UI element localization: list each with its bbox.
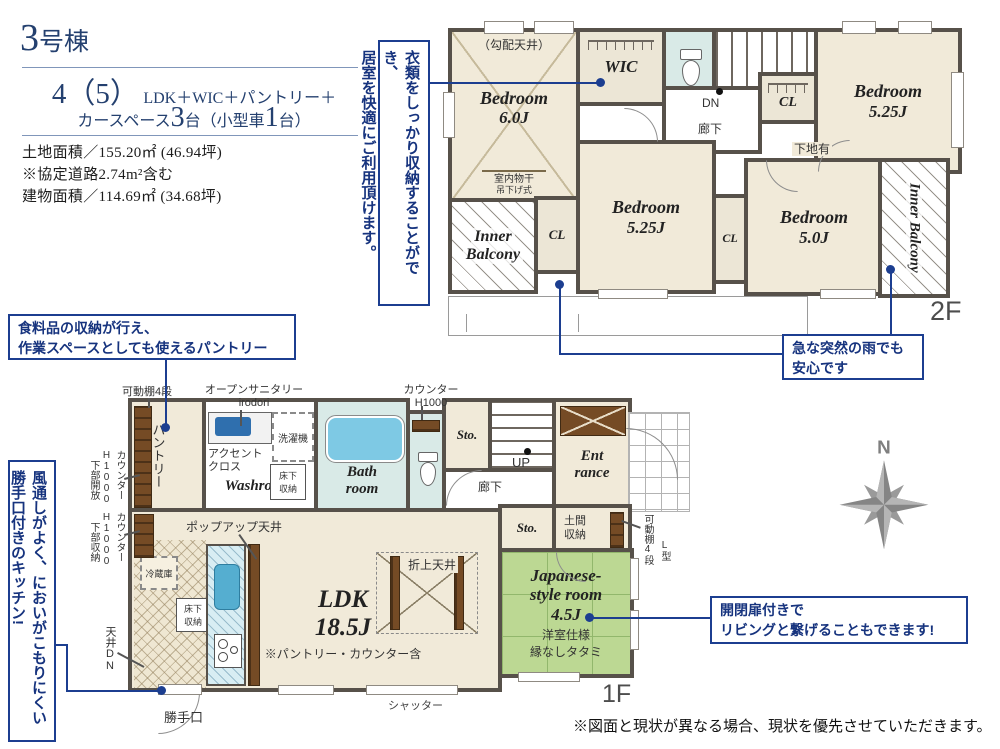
compact-car-count: 1 [265,102,279,133]
entrance-closet [560,406,626,436]
compass-n: N [877,437,891,458]
closet-label: CL [779,95,797,111]
doma-line1: 土間 [564,514,586,528]
callout-wic-line1: 衣類をしっかり収納することができ、 [379,50,423,296]
balcony-label: Inner [471,228,514,246]
carspace-post: 台） [279,113,311,130]
callout-connector [890,272,892,334]
callout-rain-line2: 安心です [792,359,914,379]
callout-pantry-line1: 食料品の収納が行え、 [18,319,286,339]
room-toilet-1f [406,410,446,512]
lshelf-main: 可動棚4段 [640,514,655,565]
room-closet-a: CL [534,196,580,274]
shitaji-label: 下地有 [792,142,832,156]
storage-label: Sto. [457,428,478,443]
callout-kitchen-line2: 勝手口付きのキッチン! [7,470,28,732]
window [898,21,932,34]
room-doma-storage: 土間 収納 [552,504,632,552]
fridge-box: 冷蔵庫 [140,556,178,590]
window [842,21,876,34]
window-shutter [366,685,458,695]
divider [22,135,358,136]
counter-l2-c: 下部収納 [86,512,101,567]
door-arc [446,470,482,506]
callout-kitchen-line1: 風通しがよく、においがこもりにくい [28,470,49,732]
underfloor-storage-box: 床下 収納 [270,464,306,500]
raised-ceiling-label: 折上天井 [406,556,458,573]
window [443,92,455,138]
kitchen-wall-panel [248,544,260,686]
ldk-note: ※パントリー・カウンター含 [262,645,424,662]
underfloor-line1: 床下 [184,602,202,615]
callout-pantry: 食料品の収納が行え、 作業スペースとしても使えるパントリー [8,314,296,360]
jroom-size: 4.5J [551,605,581,624]
stair-up-dot [524,448,531,455]
room-closet-stairs: CL [758,72,818,124]
room-name: Bedroom [854,81,922,101]
hall-2f-label: 廊下 [698,122,722,136]
callout-dot [161,423,170,432]
balcony-label: Inner Balcony [906,183,923,273]
ceiling-dn-label: 天井DN [102,626,118,672]
callout-dot [157,686,166,695]
window [484,21,524,34]
underfloor-line2: 収納 [184,615,202,628]
counter-l2-b: H1000 [101,512,112,567]
counter-h1000 [412,420,440,432]
callout-jroom: 開閉扉付きで リビングと繋げることもできます! [710,596,968,644]
floor-1-label: 1F [602,680,631,709]
page-title: 3号棟 [20,16,89,60]
room-name: Bedroom [452,88,576,108]
window [518,672,580,682]
bathtub-icon [326,416,404,462]
wic-label: WIC [604,57,637,76]
doma-label: 土間 収納 [564,514,586,543]
callout-jroom-line2: リビングと繋げることもできます! [720,621,958,641]
kitchen-sink-icon [214,564,240,610]
sanitary-label: オープンサニタリー irodori [196,384,312,410]
room-bedroom-525j-b: Bedroom 5.25J [576,140,716,294]
wall-counter [134,514,154,558]
sanitary-line2: irodori [196,397,312,410]
washer-box: 洗濯機 [272,412,314,462]
room-size: 5.0J [799,228,829,247]
closet-rod [768,83,808,93]
disclaimer: ※図面と現状が異なる場合、現状を優先させていただきます。 [573,715,992,736]
callout-wic: 衣類をしっかり収納することができ、 居室を快適にご利用頂けます。 [378,40,430,306]
room-label: Bedroom 6.0J [452,88,576,127]
land-area: 土地面積／155.20㎡ (46.94坪) [22,141,222,162]
bathroom-label: Bath room [318,464,406,498]
stove-icon [214,634,242,668]
callout-wic-line2: 居室を快適にご利用頂けます。 [357,50,379,296]
pantry-shelf [134,406,152,508]
room-name: Bedroom [780,207,848,227]
jroom-note2: 縁なしタタミ [530,643,602,660]
callout-connector [559,353,782,355]
door-arc [624,108,658,142]
closet-label: CL [722,232,737,245]
callout-connector [430,82,602,84]
callout-rain-line1: 急な突然の雨でも [792,339,914,359]
window [630,610,639,650]
roof-outline [448,296,808,336]
inner-balcony-right: Inner Balcony [878,158,950,298]
back-door-label: 勝手口 [164,710,203,726]
inner-balcony-left: Inner Balcony [448,198,538,294]
compass-rose-icon: N [828,436,940,558]
lshelf-sub: L型 [657,514,672,565]
building-area: 建物面積／114.69㎡ (34.68坪) [22,185,221,206]
counter-line1: カウンター [398,384,464,397]
storage-label: Sto. [517,521,538,536]
accent-cloth-label: アクセント クロス [208,448,262,474]
carspace-count: 3 [171,102,185,133]
counter-label-open: カウンター H1000 下部開放 [86,450,127,505]
popup-ceiling-label: ポップアップ天井 [184,520,284,534]
callout-pantry-line2: 作業スペースとしても使えるパントリー [18,339,286,359]
doma-line2: 収納 [564,528,586,542]
divider [22,67,358,68]
counter-label-storage: カウンター H1000 下部収納 [86,512,127,567]
doma-shelf [610,512,624,548]
ceiling-beam [390,556,400,630]
callout-dot [596,78,605,87]
room-bedroom-50j: Bedroom 5.0J [744,158,884,296]
callout-kitchen: 風通しがよく、においがこもりにくい 勝手口付きのキッチン! [8,460,56,742]
room-size: 6.0J [452,108,576,127]
toilet-icon [679,49,701,85]
building-suffix: 号棟 [39,29,89,56]
leader-line [421,406,423,420]
sink-icon [215,417,251,436]
bath-line1: Bath [318,464,406,481]
entrance-line2: rance [556,465,628,482]
land-note: ※協定道路2.74m²含む [22,163,173,184]
bath-line2: room [318,481,406,498]
accent-cloth-line1: アクセント [208,448,262,461]
dn-label: DN [702,96,719,110]
room-entrance: Ent rance [552,398,632,510]
window [630,558,639,600]
room-storage-2: Sto. [498,504,556,552]
shutter-label: シャッター [388,700,443,713]
plan-type-line2: カースペース3台（小型車1台） [28,102,360,134]
stair-dn-dot [716,88,723,95]
lshelf-label: 可動棚4段 L型 [640,514,672,565]
leader-line [240,410,242,426]
floor-plan-flyer: 3号棟 4（5） LDK＋WIC＋パントリー＋ カースペース3台（小型車1台） … [0,0,1000,749]
fridge-label: 冷蔵庫 [145,567,172,580]
callout-dot [886,265,895,274]
indoor-drying-type: 吊下げ式 [452,183,576,196]
callout-dot [555,280,564,289]
window [534,21,574,34]
counter-line2: H1000 [398,397,464,410]
accent-cloth-line2: クロス [208,461,262,474]
underfloor-line1: 床下 [279,469,297,482]
room-size: 5.25J [869,102,907,121]
underfloor-line2: 収納 [279,482,297,495]
callout-connector [592,617,710,619]
toilet-icon [418,452,438,486]
callout-connector [165,360,167,426]
room-wic: WIC [576,28,666,106]
leader-line [148,398,150,408]
counter-top-label: カウンター H1000 [398,384,464,410]
carspace-label: カースペース [77,113,170,130]
entrance-label: Ent rance [556,448,628,482]
closet-label: CL [549,228,566,243]
sloped-ceiling-note: （勾配天井） [452,36,576,53]
room-bedroom-6j: （勾配天井） Bedroom 6.0J 室内物干 吊下げ式 [448,28,580,204]
up-label: UP [512,455,530,471]
sanitary-line1: オープンサニタリー [196,384,312,397]
balcony-label: Balcony [463,246,523,264]
window [820,289,876,299]
window [951,72,964,148]
building-number: 3 [20,17,39,59]
washer-label: 洗濯機 [278,430,308,445]
hall-1f-label: 廊下 [478,480,502,494]
window [278,685,334,695]
counter-l2-a: カウンター [112,512,127,567]
callout-jroom-line1: 開閉扉付きで [720,601,958,621]
room-size: 5.25J [627,218,665,237]
counter-l1-c: 下部開放 [86,450,101,505]
underfloor-storage-box-2: 床下 収納 [176,598,210,632]
closet-rod [588,40,654,50]
carspace-mid: 台（小型車 [185,113,265,130]
window [598,289,668,299]
floor-2-label: 2F [930,296,962,327]
counter-l1-b: H1000 [101,450,112,505]
room-name: Bedroom [612,197,680,217]
callout-connector [559,287,561,355]
callout-connector [66,690,162,692]
room-bathroom: Bath room [314,398,410,512]
callout-connector [66,644,68,692]
room-closet-b: CL [712,194,748,284]
entrance-line1: Ent [556,448,628,465]
jroom-note1: 洋室仕様 [542,626,590,643]
callout-rain: 急な突然の雨でも 安心です [782,334,924,380]
jroom-line2: style room [530,585,602,604]
callout-dot [585,613,594,622]
